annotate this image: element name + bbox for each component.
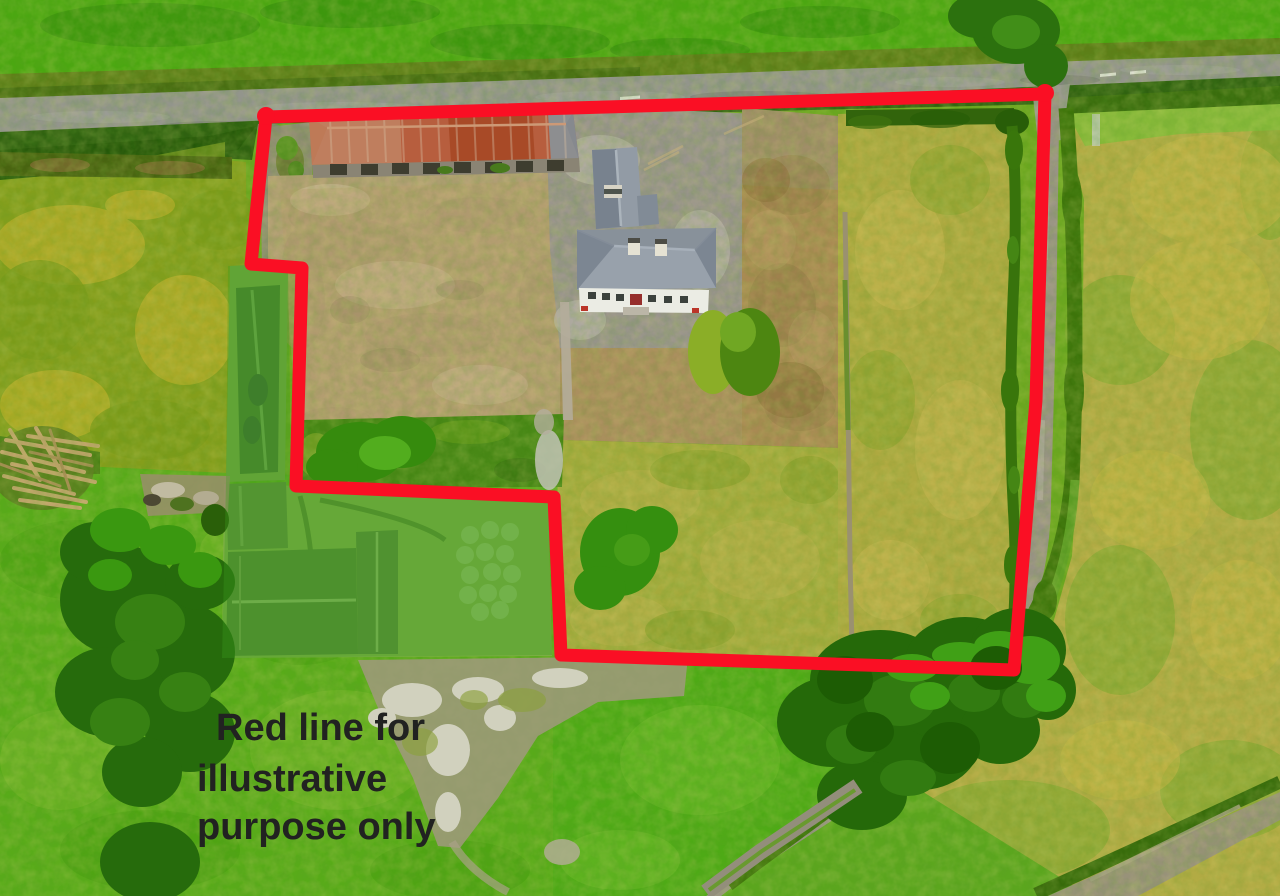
svg-text:illustrative: illustrative [197,758,387,800]
svg-text:Red line for: Red line for [216,707,425,749]
svg-text:purpose only: purpose only [197,806,436,848]
